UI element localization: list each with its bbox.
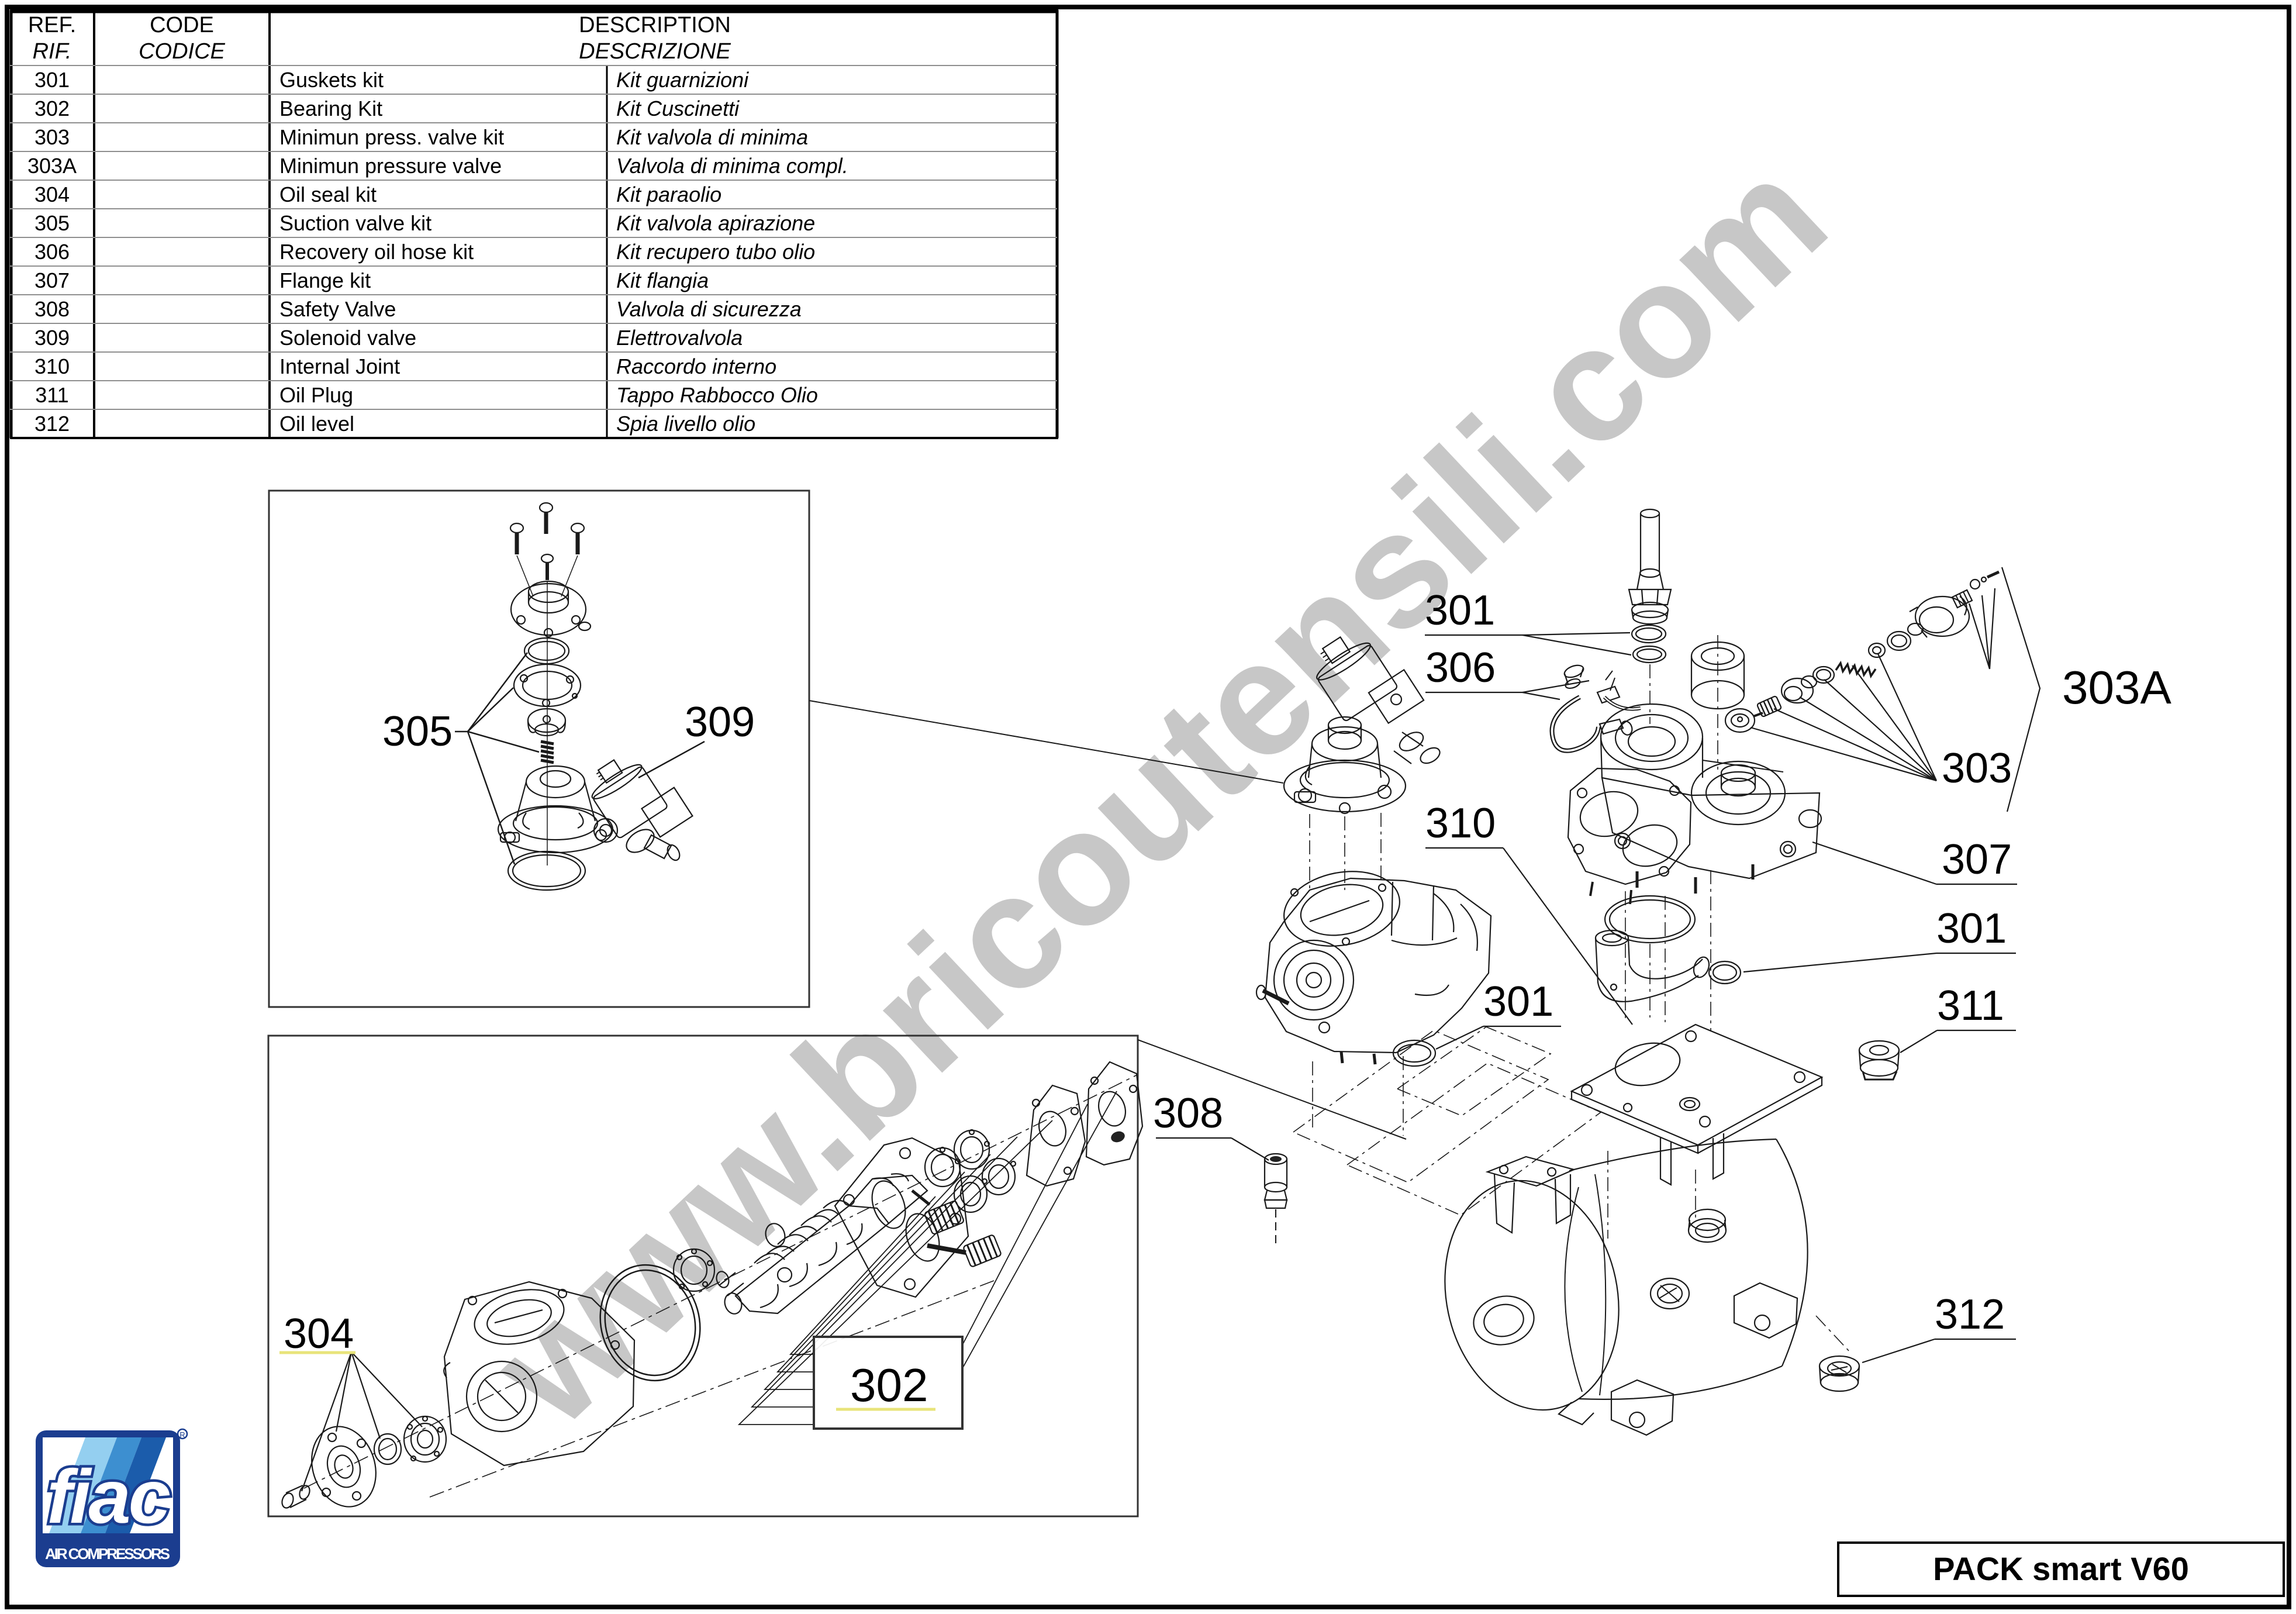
svg-text:Internal Joint: Internal Joint xyxy=(279,354,400,378)
svg-text:AIR COMPRESSORS: AIR COMPRESSORS xyxy=(45,1545,170,1563)
svg-text:Kit paraolio: Kit paraolio xyxy=(616,182,721,206)
svg-text:Solenoid valve: Solenoid valve xyxy=(279,326,416,350)
svg-text:Suction valve kit: Suction valve kit xyxy=(279,211,431,235)
svg-text:fiac: fiac xyxy=(47,1454,171,1539)
svg-text:309: 309 xyxy=(34,326,70,350)
svg-text:RIF.: RIF. xyxy=(33,39,72,64)
svg-text:Elettrovalvola: Elettrovalvola xyxy=(616,326,743,350)
svg-text:306: 306 xyxy=(1425,644,1496,691)
svg-text:CODE: CODE xyxy=(150,13,214,37)
svg-text:R: R xyxy=(179,1430,185,1439)
svg-text:Flange kit: Flange kit xyxy=(279,268,371,292)
svg-text:Valvola di minima compl.: Valvola di minima compl. xyxy=(616,154,848,178)
svg-text:301: 301 xyxy=(1483,978,1553,1025)
svg-text:310: 310 xyxy=(34,354,70,378)
svg-text:Kit valvola apirazione: Kit valvola apirazione xyxy=(616,211,815,235)
svg-text:Oil seal kit: Oil seal kit xyxy=(279,182,377,206)
svg-text:301: 301 xyxy=(1936,905,2007,952)
svg-text:CODICE: CODICE xyxy=(139,39,225,64)
svg-text:Safety Valve: Safety Valve xyxy=(279,297,396,321)
svg-text:308: 308 xyxy=(1153,1090,1223,1137)
svg-text:302: 302 xyxy=(850,1359,928,1411)
svg-text:303A: 303A xyxy=(27,154,77,178)
svg-text:309: 309 xyxy=(685,699,755,746)
svg-text:DESCRIPTION: DESCRIPTION xyxy=(579,13,731,37)
svg-text:Valvola di sicurezza: Valvola di sicurezza xyxy=(616,297,802,321)
svg-text:Oil Plug: Oil Plug xyxy=(279,383,353,407)
svg-text:PACK smart V60: PACK smart V60 xyxy=(1933,1550,2189,1587)
svg-text:Tappo Rabbocco Olio: Tappo Rabbocco Olio xyxy=(616,383,818,407)
svg-text:Minimun pressure valve: Minimun pressure valve xyxy=(279,154,502,178)
svg-text:Kit flangia: Kit flangia xyxy=(616,268,709,292)
svg-text:304: 304 xyxy=(284,1310,354,1357)
svg-text:306: 306 xyxy=(34,240,70,264)
svg-text:Raccordo interno: Raccordo interno xyxy=(616,354,776,378)
svg-text:302: 302 xyxy=(34,96,70,120)
svg-text:303: 303 xyxy=(1942,745,2012,792)
svg-text:Recovery oil hose kit: Recovery oil hose kit xyxy=(279,240,474,264)
svg-text:311: 311 xyxy=(1937,982,2004,1029)
svg-text:Spia livello olio: Spia livello olio xyxy=(616,412,755,436)
svg-text:305: 305 xyxy=(382,708,453,755)
svg-text:Kit valvola di minima: Kit valvola di minima xyxy=(616,125,808,149)
svg-text:Bearing Kit: Bearing Kit xyxy=(279,96,382,120)
svg-text:303: 303 xyxy=(34,125,70,149)
svg-text:305: 305 xyxy=(34,211,70,235)
svg-text:310: 310 xyxy=(1425,800,1496,847)
svg-text:Kit Cuscinetti: Kit Cuscinetti xyxy=(616,96,740,120)
svg-text:307: 307 xyxy=(34,268,70,292)
svg-text:308: 308 xyxy=(34,297,70,321)
svg-text:DESCRIZIONE: DESCRIZIONE xyxy=(579,39,731,64)
svg-text:Kit guarnizioni: Kit guarnizioni xyxy=(616,68,749,92)
svg-text:Guskets kit: Guskets kit xyxy=(279,68,384,92)
svg-text:311: 311 xyxy=(35,383,68,407)
svg-text:REF.: REF. xyxy=(28,13,76,37)
svg-text:307: 307 xyxy=(1942,836,2012,883)
svg-text:312: 312 xyxy=(1935,1291,2005,1338)
svg-text:Oil level: Oil level xyxy=(279,412,354,436)
svg-text:301: 301 xyxy=(1425,587,1495,634)
svg-text:312: 312 xyxy=(34,412,70,436)
svg-text:304: 304 xyxy=(34,182,70,206)
svg-text:301: 301 xyxy=(34,68,70,92)
svg-text:Minimun press. valve kit: Minimun press. valve kit xyxy=(279,125,504,149)
svg-text:303A: 303A xyxy=(2062,661,2171,713)
svg-text:Kit recupero tubo olio: Kit recupero tubo olio xyxy=(616,240,815,264)
